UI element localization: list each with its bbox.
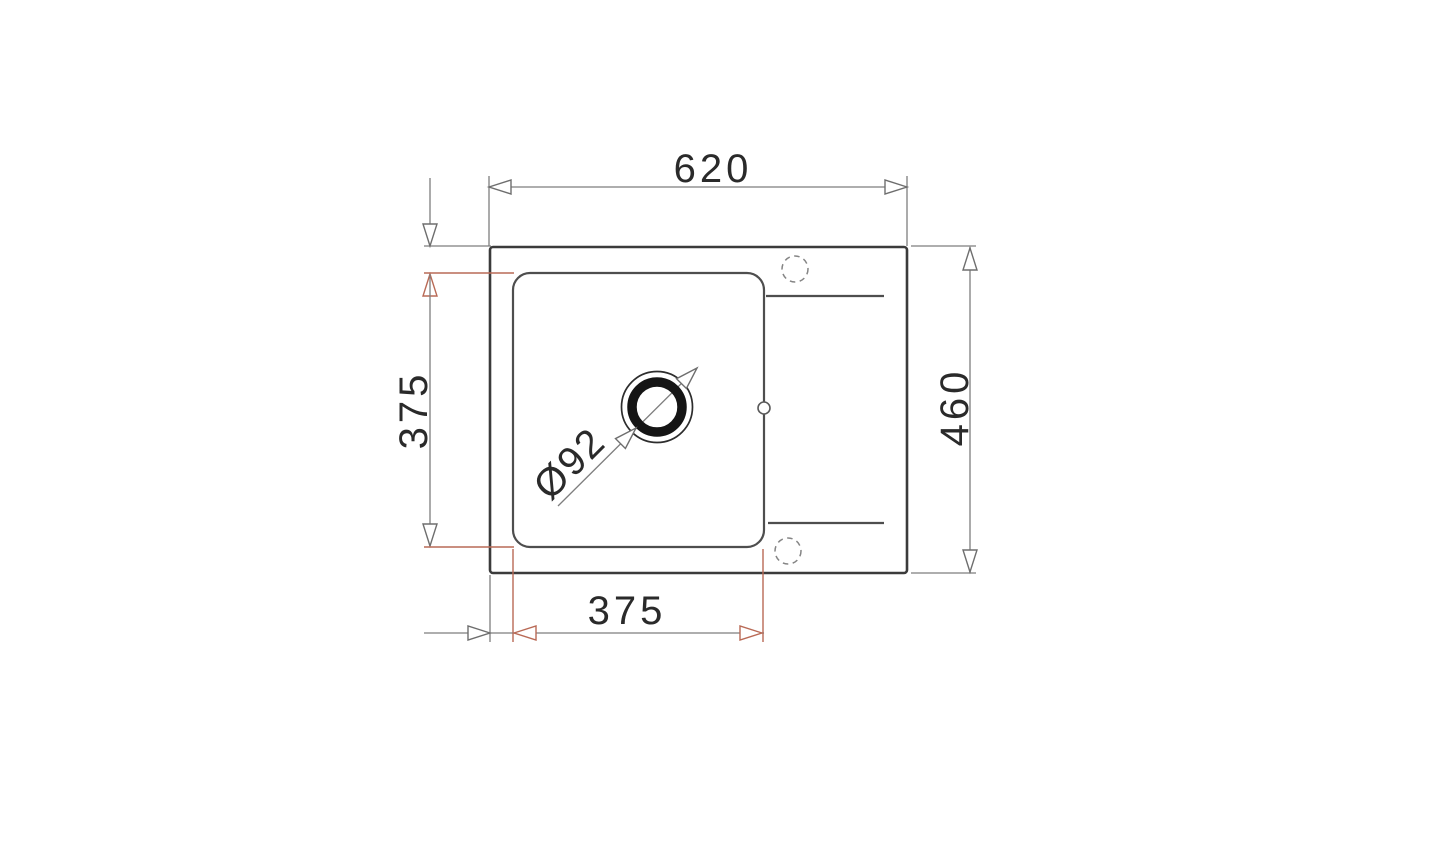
arrowhead-icon [514,626,536,640]
arrowhead-icon [963,550,977,572]
overall-width-label: 620 [674,147,753,191]
bowl-outline [513,273,764,547]
dim-overall-depth: 460 [911,246,977,573]
technical-drawing-page: Ø92 620 460 [0,0,1445,867]
dim-overall-width: 620 [489,147,907,246]
arrowhead-icon [885,180,907,194]
sink-technical-drawing: Ø92 620 460 [0,0,1445,867]
arrowhead-icon [740,626,762,640]
arrowhead-icon [963,248,977,270]
arrowhead-icon [423,524,437,546]
overflow-marker-circle [758,402,770,414]
arrowhead-icon [489,180,511,194]
arrowhead-icon [423,224,437,246]
overall-depth-label: 460 [933,368,977,447]
bowl-depth-label: 375 [392,371,436,450]
arrowhead-icon [468,626,490,640]
bowl-width-label: 375 [588,589,667,633]
